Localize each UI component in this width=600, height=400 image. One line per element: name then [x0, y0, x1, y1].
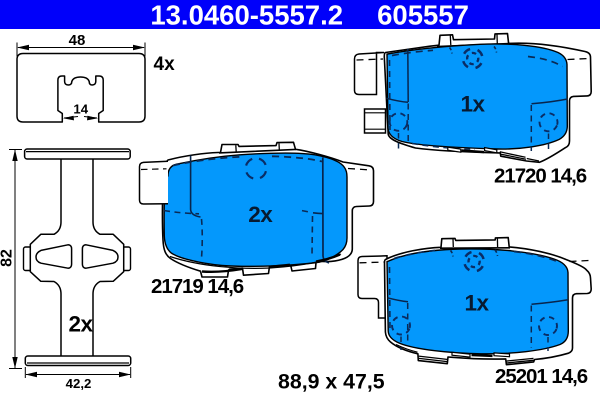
svg-text:4x: 4x [154, 54, 176, 75]
svg-text:1x: 1x [465, 291, 490, 316]
svg-text:88,9 x 47,5: 88,9 x 47,5 [278, 370, 385, 394]
svg-text:48: 48 [69, 32, 86, 49]
svg-text:82: 82 [0, 249, 16, 267]
svg-text:21720 14,6: 21720 14,6 [494, 165, 587, 188]
svg-text:42,2: 42,2 [66, 376, 92, 391]
svg-text:2x: 2x [248, 202, 273, 227]
svg-text:13.0460-5557.2: 13.0460-5557.2 [150, 0, 343, 30]
svg-text:2x: 2x [69, 312, 94, 337]
svg-text:21719 14,6: 21719 14,6 [151, 275, 244, 298]
svg-text:14: 14 [73, 102, 88, 117]
svg-text:1x: 1x [461, 92, 486, 117]
svg-text:25201 14,6: 25201 14,6 [495, 365, 588, 388]
svg-text:605557: 605557 [377, 0, 469, 30]
